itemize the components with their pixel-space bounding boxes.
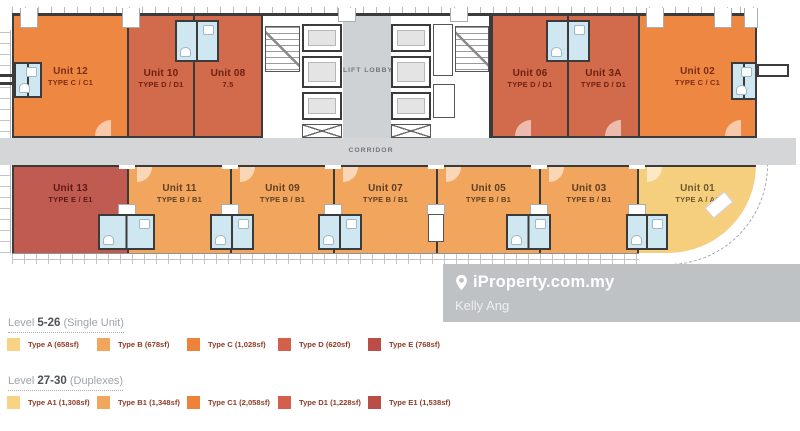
unit-name: Unit 08 [195, 68, 261, 79]
legend-swatch [97, 338, 110, 351]
legend-item: Type D1 (1,228sf) [278, 396, 361, 409]
legend-swatch [368, 396, 381, 409]
unit-06-label: Unit 06 TYPE D / D1 [493, 68, 567, 89]
unit-name: Unit 03 [541, 183, 637, 194]
balcony-tab [122, 8, 140, 28]
lift-shaft [391, 56, 431, 88]
unit-type: 7.5 [195, 80, 261, 89]
location-pin-icon [455, 274, 468, 291]
lift-shaft [302, 92, 342, 120]
unit-13-label: Unit 13 TYPE E / E1 [14, 183, 127, 204]
unit-type: TYPE E / E1 [14, 195, 127, 204]
service-room [433, 24, 453, 76]
unit-09-label: Unit 09 TYPE B / B1 [232, 183, 333, 204]
legend-header-single: Level 5-26 (Single Unit) [8, 313, 124, 333]
door-opening [325, 165, 341, 169]
bathroom-pod [546, 20, 590, 62]
door-opening [119, 165, 135, 169]
lift-shaft [391, 24, 431, 52]
legend-level-range: 27-30 [37, 375, 66, 387]
bathroom-pod [14, 62, 42, 98]
unit-type: TYPE B / B1 [438, 195, 539, 204]
legend-level-prefix: Level [8, 317, 34, 329]
legend-label: Type A1 (1,308sf) [28, 398, 90, 407]
unit-type: TYPE A / A1 [639, 195, 756, 204]
bathroom-pod [318, 214, 362, 250]
corridor-label: CORRIDOR [331, 147, 411, 154]
legend-item: Type A1 (1,308sf) [7, 396, 90, 409]
legend-item: Type B1 (1,348sf) [97, 396, 180, 409]
balcony-tab [714, 8, 732, 28]
unit-name: Unit 06 [493, 68, 567, 79]
balcony-tab [744, 8, 758, 28]
unit-name: Unit 07 [335, 183, 436, 194]
unit-11-label: Unit 11 TYPE B / B1 [129, 183, 230, 204]
balcony-tab [20, 8, 38, 28]
legend-swatch [97, 396, 110, 409]
bottom-facade-ticks [12, 253, 639, 264]
unit-name: Unit 3A [569, 68, 638, 79]
door-opening [428, 165, 444, 169]
right-ledge [757, 64, 789, 77]
bathroom-pod [98, 214, 155, 250]
stairs-left [265, 26, 300, 72]
legend-level-suffix: (Duplexes) [67, 375, 123, 387]
service-room [428, 214, 444, 242]
legend-item: Type C (1,028sf) [187, 338, 266, 351]
bathroom-pod [506, 214, 551, 250]
unit-name: Unit 05 [438, 183, 539, 194]
unit-07-label: Unit 07 TYPE B / B1 [335, 183, 436, 204]
bathroom-pod [731, 62, 757, 100]
unit-01-label: Unit 01 TYPE A / A1 [639, 183, 756, 204]
balcony-tab [646, 8, 664, 28]
unit-type: TYPE D / D1 [129, 80, 193, 89]
unit-05-label: Unit 05 TYPE B / B1 [438, 183, 539, 204]
legend-label: Type B (678sf) [118, 340, 169, 349]
bathroom-pod [210, 214, 254, 250]
unit-type: TYPE D / D1 [569, 80, 638, 89]
legend-label: Type E1 (1,538sf) [389, 398, 450, 407]
legend-swatch [7, 338, 20, 351]
unit-3a-label: Unit 3A TYPE D / D1 [569, 68, 638, 89]
legend-swatch [368, 338, 381, 351]
service-room [433, 84, 455, 118]
lift-lobby [343, 16, 391, 140]
unit-type: TYPE B / B1 [541, 195, 637, 204]
legend-label: Type D1 (1,228sf) [299, 398, 361, 407]
unit-type: TYPE B / B1 [129, 195, 230, 204]
unit-type: TYPE D / D1 [493, 80, 567, 89]
bathroom-pod [626, 214, 668, 250]
legend-swatch [187, 396, 200, 409]
legend-label: Type B1 (1,348sf) [118, 398, 180, 407]
watermark-brand: iProperty.com.my [473, 273, 614, 292]
unit-type: TYPE B / B1 [335, 195, 436, 204]
door-opening [629, 165, 645, 169]
legend-level-suffix: (Single Unit) [60, 317, 124, 329]
legend-label: Type A (658sf) [28, 340, 79, 349]
legend-item: Type C1 (2,058sf) [187, 396, 270, 409]
legend-item: Type E1 (1,538sf) [368, 396, 450, 409]
balcony-tab [450, 8, 468, 22]
legend-swatch [187, 338, 200, 351]
legend-label: Type C (1,028sf) [208, 340, 266, 349]
unit-name: Unit 10 [129, 68, 193, 79]
service-shaft [391, 124, 431, 138]
legend-swatch [7, 396, 20, 409]
lift-lobby-label: LIFT LOBBY [343, 67, 391, 74]
unit-type: TYPE B / B1 [232, 195, 333, 204]
legend-label: Type E (768sf) [389, 340, 440, 349]
lift-shaft [302, 24, 342, 52]
watermark-brand-row: iProperty.com.my [455, 273, 614, 292]
legend-label: Type C1 (2,058sf) [208, 398, 270, 407]
unit-name: Unit 01 [639, 183, 756, 194]
floor-plan-page: Unit 12 TYPE C / C1 Unit 10 TYPE D / D1 … [0, 0, 800, 431]
legend-item: Type A (658sf) [7, 338, 79, 351]
service-shaft [302, 124, 342, 138]
unit-name: Unit 11 [129, 183, 230, 194]
legend-swatch [278, 338, 291, 351]
unit-08-label: Unit 08 7.5 [195, 68, 261, 89]
watermark-box: iProperty.com.my Kelly Ang [443, 264, 800, 322]
legend-level-prefix: Level [8, 375, 34, 387]
balcony-tab [338, 8, 356, 22]
unit-name: Unit 09 [232, 183, 333, 194]
legend-item: Type D (620sf) [278, 338, 350, 351]
unit-03-label: Unit 03 TYPE B / B1 [541, 183, 637, 204]
lift-shaft [302, 56, 342, 88]
legend-label: Type D (620sf) [299, 340, 350, 349]
legend-swatch [278, 396, 291, 409]
unit-name: Unit 13 [14, 183, 127, 194]
door-opening [531, 165, 547, 169]
legend-header-duplex: Level 27-30 (Duplexes) [8, 371, 123, 391]
legend-level-range: 5-26 [37, 317, 60, 329]
bathroom-pod [175, 20, 219, 62]
lift-shaft [391, 92, 431, 120]
legend-item: Type B (678sf) [97, 338, 169, 351]
legend-item: Type E (768sf) [368, 338, 440, 351]
watermark-agent: Kelly Ang [455, 298, 509, 313]
stairs-right [455, 26, 489, 72]
unit-10-label: Unit 10 TYPE D / D1 [129, 68, 193, 89]
door-opening [222, 165, 238, 169]
